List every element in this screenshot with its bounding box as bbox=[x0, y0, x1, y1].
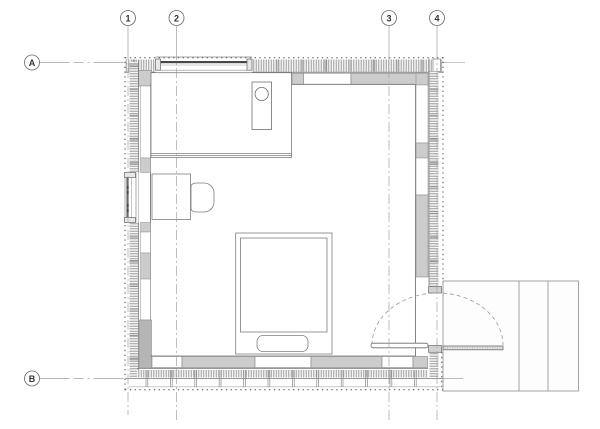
svg-text:B: B bbox=[29, 374, 36, 384]
svg-text:4: 4 bbox=[434, 13, 439, 23]
svg-text:1: 1 bbox=[125, 13, 130, 23]
svg-text:3: 3 bbox=[386, 13, 391, 23]
svg-text:2: 2 bbox=[174, 13, 179, 23]
svg-text:A: A bbox=[29, 58, 36, 68]
